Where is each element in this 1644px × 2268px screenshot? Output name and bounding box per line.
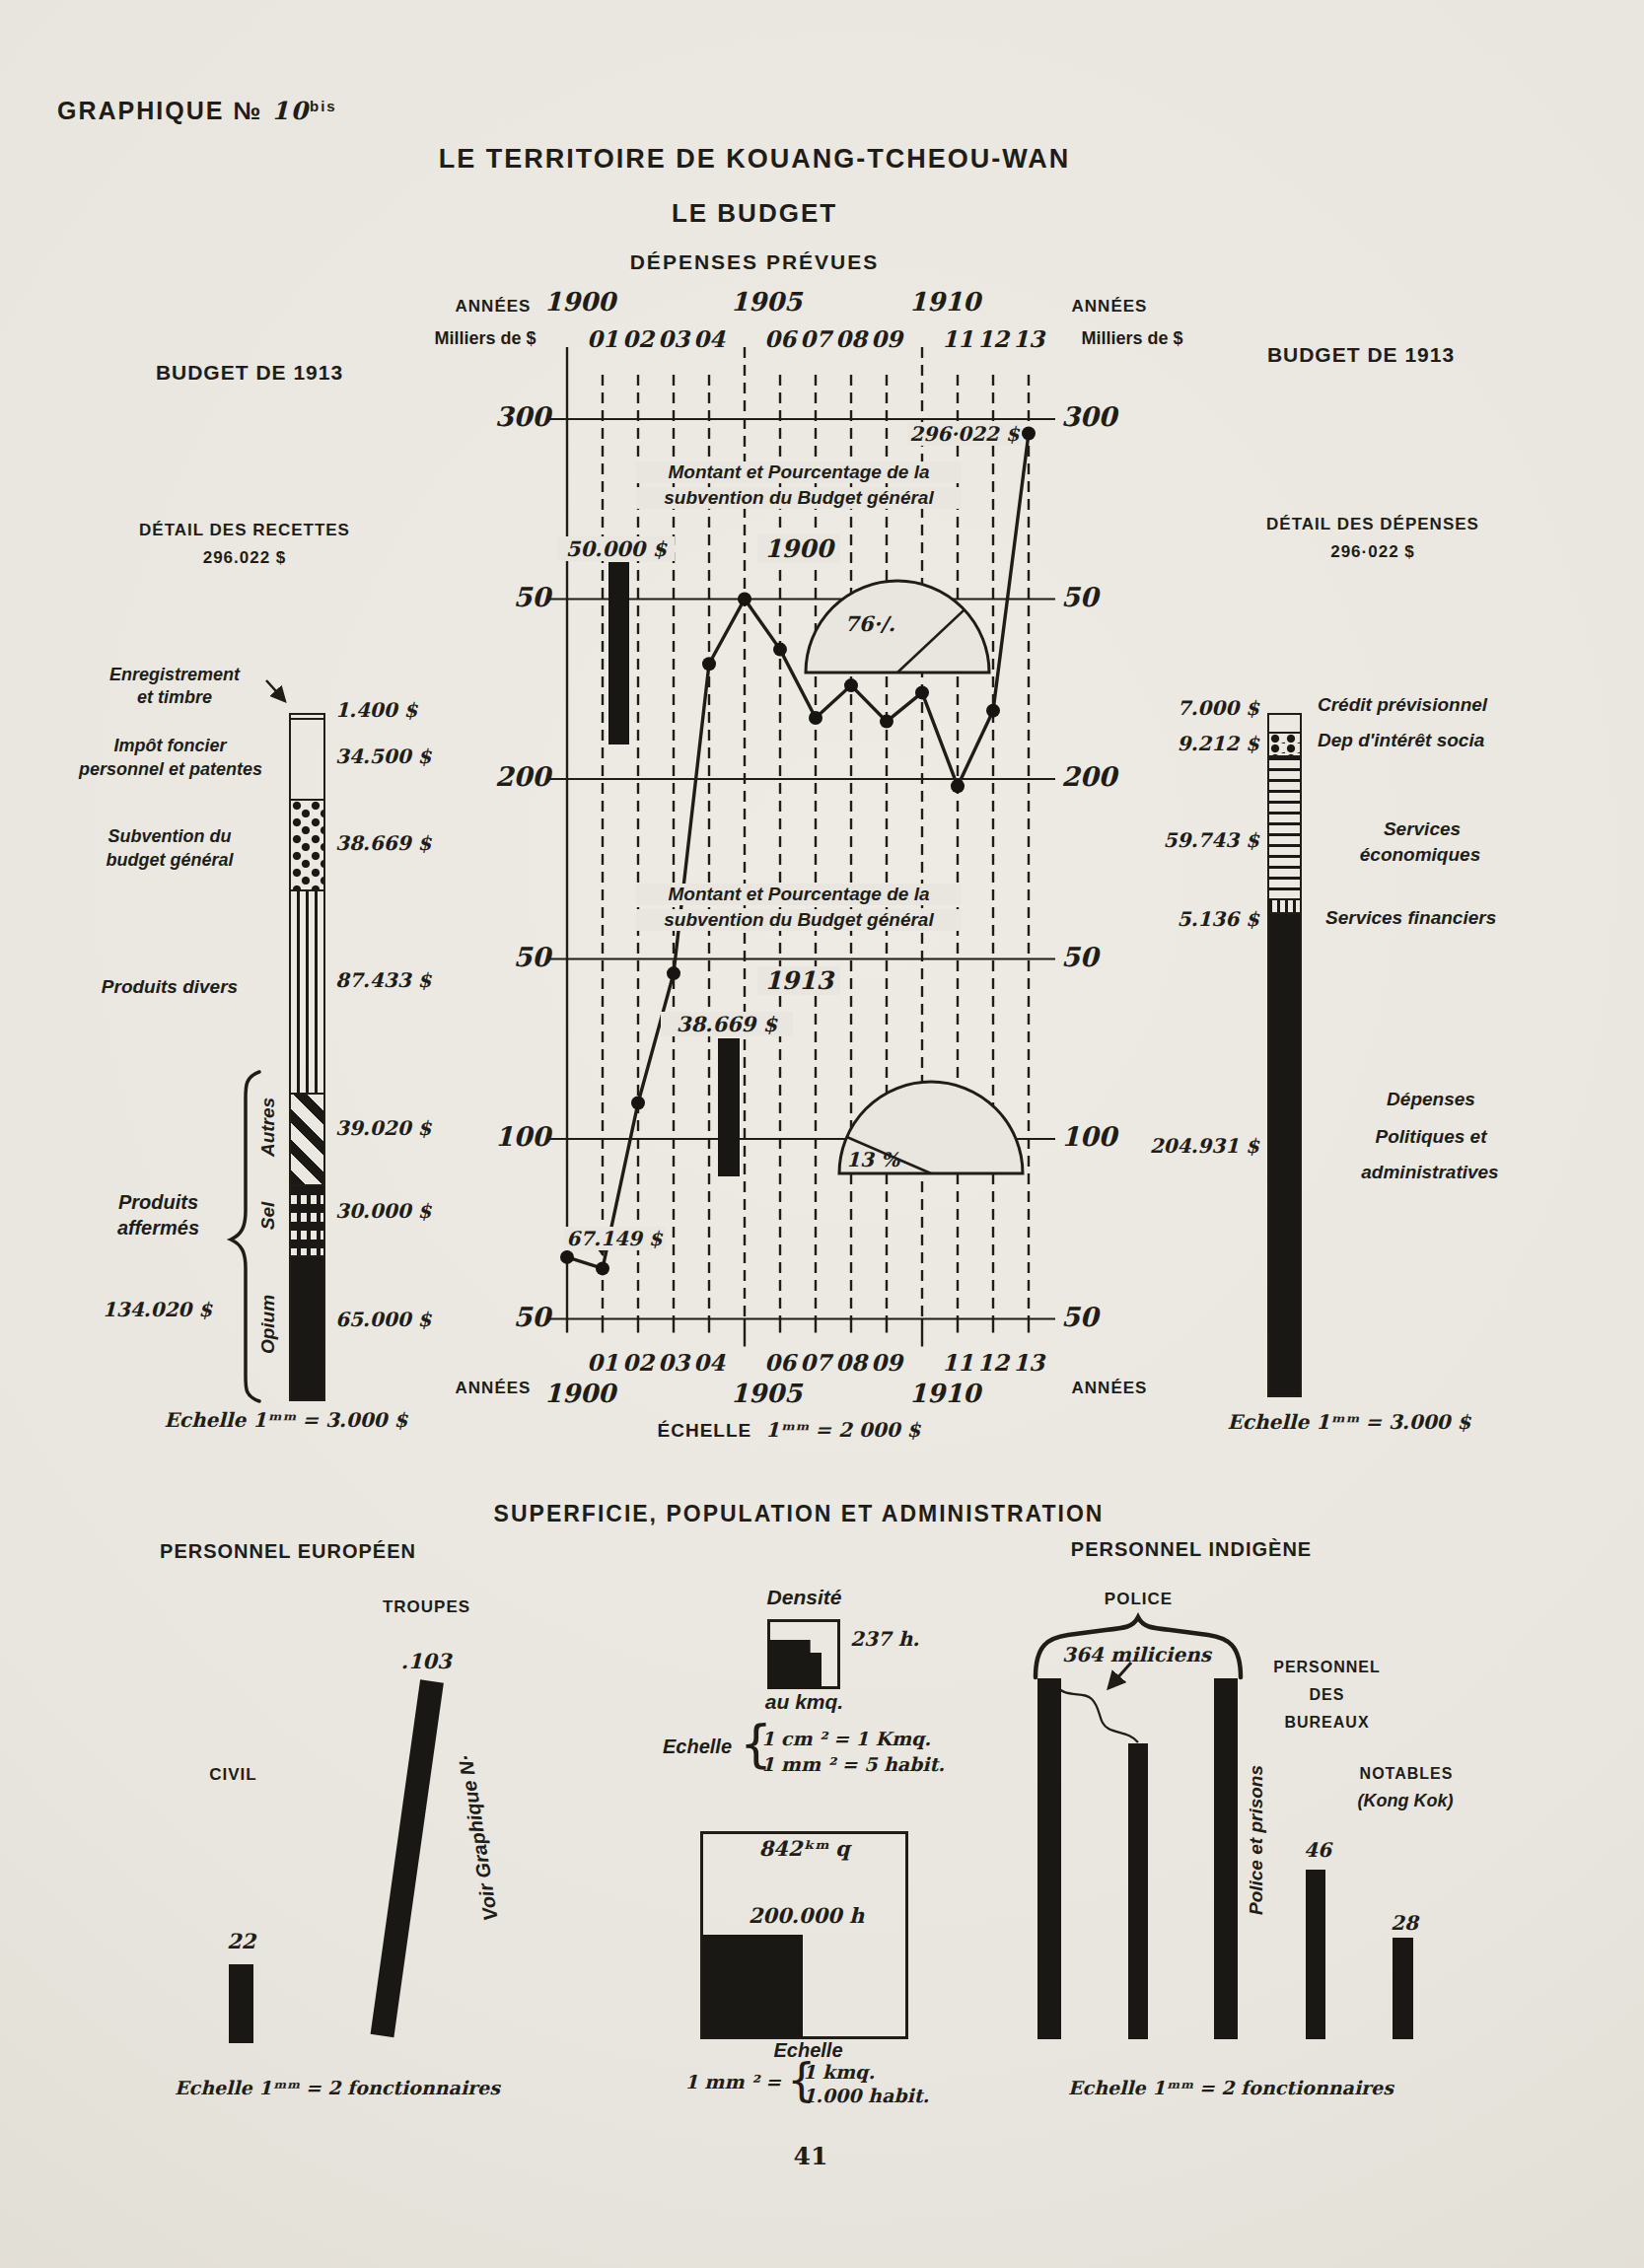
troupes-bar [371,1679,444,2037]
decade-top-1905: 1905 [707,287,825,317]
budget-point [986,704,1000,718]
year-tick-bottom-04: 04 [689,1349,729,1376]
bar-segment-d-penses [1269,912,1300,1395]
decade-bottom-1900: 1900 [521,1379,639,1408]
bureaux-label: BUREAUX [1270,1714,1384,1732]
bar-segment-dep-d-int-r-t-socia [1269,732,1300,755]
civil-bar [229,1964,253,2043]
decade-bottom-1905: 1905 [707,1379,825,1408]
subvention-1900-bar [608,562,629,744]
recettes-seg-value: 30.000 $ [335,1199,449,1223]
voir-graphique-note: Voir Graphique N· [442,1675,515,2001]
densite-value: 237 h. [850,1627,949,1651]
prisons-bar [1128,1743,1148,2039]
year-tick-bottom-07: 07 [796,1349,835,1376]
depenses-seg-label: économiques [1322,844,1519,866]
densite-echelle-line1: 1 cm ² = 1 Kmq. [761,1728,968,1749]
year-tick-bottom-13: 13 [1009,1349,1048,1376]
ytick-left-50: 50 [464,1302,550,1332]
densite-unit: au kmq. [728,1690,881,1714]
densite-title: Densité [728,1586,881,1609]
ytick-left-200: 200 [464,761,550,792]
annees-top-right: ANNÉES [1050,297,1169,317]
depenses-seg-label: Crédit prévisionnel [1318,694,1554,716]
decade-bottom-1910: 1910 [886,1379,1004,1408]
recettes-seg-value: 1.400 $ [335,698,449,722]
produits-affermes-value: 134.020 $ [91,1298,224,1321]
budget-point [667,966,680,980]
police-bar-left [1037,1678,1061,2039]
center-scale-word: ÉCHELLE [658,1420,752,1441]
recettes-budget-title: BUDGET DE 1913 [126,361,373,385]
last-point-value: 296·022 $ [907,422,1022,446]
year-tick-bottom-02: 02 [618,1349,658,1376]
produits-affermes-label: affermés [97,1217,220,1240]
ytick-right-300: 300 [1061,401,1148,432]
miliciens-connector-squiggle [1049,1679,1138,1742]
depenses-detail-title: DÉTAIL DES DÉPENSES [1235,515,1511,534]
year-tick-top-09: 09 [867,325,906,352]
bar-segment-opium [291,1255,323,1399]
year-tick-bottom-08: 08 [831,1349,871,1376]
year-tick-top-06: 06 [760,325,800,352]
troupes-value: .103 [377,1649,475,1673]
graphique-suffix: bis [310,98,337,114]
budget-point [951,779,965,793]
civil-value: 22 [199,1929,283,1953]
bar-segment-subvention-du [291,799,323,889]
recettes-seg-label: Enregistrement [81,665,268,685]
year-tick-bottom-06: 06 [760,1349,800,1376]
inset1913-pie-percent: 13 % [831,1148,914,1171]
recettes-stacked-bar [289,713,325,1401]
europeen-scale: Echelle 1ᵐᵐ = 2 fonctionnaires [140,2077,535,2098]
notables-value: 28 [1379,1911,1430,1935]
budget-point [915,685,929,699]
bottom-section-title: SUPERFICIE, POPULATION ET ADMINISTRATION [414,1501,1183,1527]
population-filled-square [702,1935,803,2037]
depenses-seg-value: 204.931 $ [1136,1134,1259,1158]
inset1900-title: Montant et Pourcentage de la [636,461,962,483]
recettes-seg-value: 38.669 $ [335,831,449,855]
superficie-value: 842ᵏᵐ q [718,1836,891,1861]
year-tick-top-11: 11 [938,325,977,352]
depenses-seg-label: Services [1333,818,1511,840]
budget-point [560,1250,574,1264]
year-tick-top-03: 03 [654,325,693,352]
ytick-right-250: 50 [1061,582,1148,612]
notables-sublabel: (Kong Kok) [1331,1791,1479,1811]
milliers-right: Milliers de $ [1053,328,1211,349]
year-tick-bottom-11: 11 [938,1349,977,1376]
police-bar-right [1214,1678,1238,2039]
depenses-total: 296·022 $ [1235,542,1511,562]
indigene-scale: Echelle 1ᵐᵐ = 2 fonctionnaires [1053,2077,1408,2098]
ytick-left-250: 50 [464,582,550,612]
bar-segment-cr-dit-pr-visionnel [1269,715,1300,732]
budget-point [738,593,751,606]
recettes-seg-value: 39.020 $ [335,1116,449,1140]
annees-bottom-right: ANNÉES [1050,1379,1169,1398]
budget-point [880,715,893,729]
inset1900-bar-value: 50.000 $ [558,536,675,561]
decade-top-1900: 1900 [521,287,639,317]
recettes-seg-label: Impôt foncier [59,736,281,756]
bar-segment-autres [291,1093,323,1184]
year-tick-top-07: 07 [796,325,835,352]
population-value: 200.000 h [720,1903,893,1928]
personnel-europeen-title: PERSONNEL EUROPÉEN [120,1540,456,1563]
recettes-seg-value: 65.000 $ [335,1308,449,1331]
year-tick-bottom-03: 03 [654,1349,693,1376]
recettes-seg-value: 87.433 $ [335,968,449,992]
civil-label: CIVIL [191,1765,275,1785]
recettes-seg-label: Produits divers [61,976,278,998]
ytick-right-200: 200 [1061,761,1148,792]
ytick-right-150: 50 [1061,942,1148,972]
depenses-seg-value: 59.743 $ [1146,828,1259,852]
inset1913-bar-value: 38.669 $ [661,1012,793,1036]
inset1913-year: 1913 [757,966,840,995]
budget-point [631,1097,645,1110]
ytick-left-150: 50 [464,942,550,972]
recettes-seg-label: budget général [61,850,278,871]
main-title: LE TERRITOIRE DE KOUANG-TCHEOU-WAN [261,144,1248,175]
center-scale: ÉCHELLE 1ᵐᵐ = 2 000 $ [631,1418,947,1442]
bar-segment-imp-t-foncier [291,718,323,799]
depenses-scale: Echelle 1ᵐᵐ = 3.000 $ [1211,1410,1487,1434]
bureaux-bar [1306,1870,1325,2039]
miliciens-value: 364 miliciens [1055,1643,1218,1666]
bureaux-value: 46 [1292,1838,1343,1862]
budget-point [1022,427,1036,441]
ytick-left-300: 300 [464,401,550,432]
recettes-total: 296.022 $ [116,548,373,568]
ytick-left-100: 100 [464,1121,550,1152]
densite-echelle-word: Echelle [653,1736,742,1758]
depenses-seg-value: 5.136 $ [1146,907,1259,931]
recettes-detail-title: DÉTAIL DES RECETTES [116,521,373,540]
graphique-num: 10 [271,97,310,125]
densite-echelle-line2: 1 mm ² = 5 habit. [761,1753,978,1775]
depenses-seg-label: administratives [1322,1162,1538,1183]
depenses-seg-value: 7.000 $ [1146,696,1259,720]
depenses-seg-label: Dep d'intérêt socia [1318,730,1554,751]
milliers-left: Milliers de $ [406,328,564,349]
decade-top-1910: 1910 [886,287,1004,317]
enregistrement-arrow [266,680,285,701]
budget-point [702,657,716,671]
bar-segment-sel [291,1184,323,1255]
inset1900-pie-percent: 76·/. [816,611,924,636]
bar-segment-produits-divers [291,889,323,1093]
produits-affermes-label: Produits [97,1191,220,1214]
page-number: 41 [761,2142,860,2170]
box-echelle-line1: 1 kmq. [803,2061,951,2083]
graphique-label: GRAPHIQUE № [57,97,262,124]
budget-point [773,643,787,657]
troupes-label: TROUPES [375,1597,478,1617]
notables-label: NOTABLES [1337,1765,1475,1783]
budget-point [596,1261,609,1275]
chart-title: DÉPENSES PRÉVUES [261,250,1248,274]
depenses-seg-label: Dépenses [1337,1089,1525,1110]
first-point-value: 67.149 $ [564,1227,665,1250]
recettes-seg-label-opium: Opium [257,1255,279,1393]
personnel-indigene-title: PERSONNEL INDIGÈNE [1014,1538,1369,1561]
year-tick-top-12: 12 [973,325,1013,352]
scanned-statistical-plate: GRAPHIQUE № 10bis LE TERRITOIRE DE KOUAN… [0,0,1644,2268]
recettes-seg-value: 34.500 $ [335,744,449,768]
bureaux-label: DES [1270,1686,1384,1704]
inset1900-year: 1900 [757,534,840,563]
year-tick-top-04: 04 [689,325,729,352]
year-tick-top-02: 02 [618,325,658,352]
year-tick-bottom-12: 12 [973,1349,1013,1376]
police-label: POLICE [1077,1590,1200,1609]
depenses-stacked-bar [1267,713,1302,1397]
notables-bar [1393,1938,1413,2039]
graphique-number: GRAPHIQUE № 10bis [57,97,337,125]
subtitle: LE BUDGET [261,198,1248,229]
year-tick-bottom-09: 09 [867,1349,906,1376]
budget-point [844,678,858,692]
brace-produits-affermes [231,1072,259,1401]
recettes-scale: Echelle 1ᵐᵐ = 3.000 $ [138,1408,434,1432]
ytick-right-100: 100 [1061,1121,1148,1152]
subvention-1913-bar [718,1038,740,1176]
year-tick-top-01: 01 [583,325,622,352]
inset1900-title: subvention du Budget général [636,487,962,509]
year-tick-bottom-01: 01 [583,1349,622,1376]
bureaux-label: PERSONNEL [1270,1659,1384,1676]
recettes-seg-label: personnel et patentes [47,759,294,780]
inset1913-title: subvention du Budget général [636,909,962,931]
depenses-seg-label: Services financiers [1325,907,1552,929]
recettes-seg-label: Subvention du [61,826,278,847]
center-scale-value: 1ᵐᵐ = 2 000 $ [765,1418,920,1442]
bar-segment-services [1269,755,1300,898]
year-tick-top-08: 08 [831,325,871,352]
police-prisons-label: Police et prisons [1246,1692,1267,1988]
bar-segment-services-financiers [1269,898,1300,912]
budget-point [809,711,822,725]
depenses-seg-label: Politiques et [1327,1126,1535,1148]
box-echelle-prefix: 1 mm ² = [643,2071,781,2092]
recettes-seg-label: et timbre [81,687,268,708]
inset1913-title: Montant et Pourcentage de la [636,884,962,905]
year-tick-top-13: 13 [1009,325,1048,352]
depenses-budget-title: BUDGET DE 1913 [1238,343,1484,367]
box-echelle-line2: 1.000 habit. [803,2085,970,2106]
ytick-right-50: 50 [1061,1302,1148,1332]
depenses-seg-value: 9.212 $ [1146,732,1259,755]
